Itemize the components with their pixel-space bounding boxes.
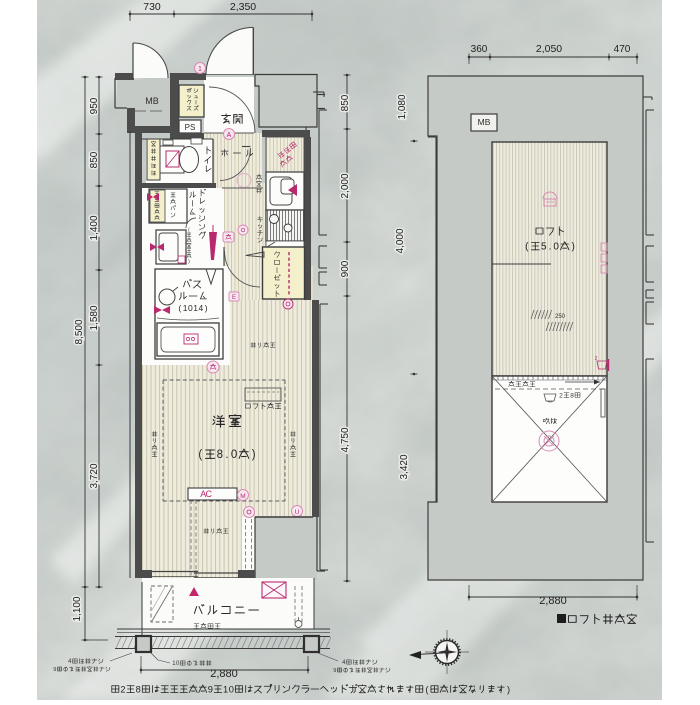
svg-text:PS: PS [185,123,196,132]
svg-text:2: 2 [595,356,598,362]
svg-text:470: 470 [614,44,631,55]
svg-text:8: 8 [570,392,574,399]
svg-text:0: 0 [229,684,234,694]
svg-text:1,100: 1,100 [72,596,83,621]
svg-text:730: 730 [143,1,161,13]
svg-text:): ) [205,303,208,313]
svg-text:8: 8 [217,449,223,461]
svg-text:4,000: 4,000 [395,228,406,253]
svg-text:8,500: 8,500 [74,319,85,344]
svg-text:.: . [549,242,552,253]
svg-text:1,580: 1,580 [89,305,100,330]
svg-text:2: 2 [559,392,563,399]
svg-text:C: C [206,489,213,499]
svg-text:8: 8 [136,684,141,694]
svg-text:2,880: 2,880 [210,668,238,680]
svg-text:(: ( [198,449,202,461]
svg-text:9: 9 [53,667,56,673]
svg-text:3,420: 3,420 [399,454,410,479]
svg-text:1: 1 [183,303,188,313]
svg-text:1,080: 1,080 [397,94,408,119]
svg-text:900: 900 [340,260,351,277]
svg-text:9: 9 [208,684,213,694]
svg-text:1,400: 1,400 [89,215,100,240]
svg-text:1: 1 [223,684,228,694]
svg-text:2,000: 2,000 [340,173,351,198]
svg-text:E: E [232,295,236,301]
svg-text:2,350: 2,350 [230,1,256,13]
svg-text:3,720: 3,720 [89,463,100,488]
svg-text:950: 950 [89,97,100,114]
svg-text:2,050: 2,050 [536,43,562,55]
svg-text:A: A [227,132,232,139]
svg-text:): ) [507,684,510,694]
svg-text:): ) [572,242,575,253]
svg-text:U: U [295,509,300,516]
svg-text:850: 850 [89,151,100,168]
svg-text:(: ( [178,303,181,313]
svg-text:0: 0 [188,303,193,313]
svg-text:0: 0 [553,242,559,253]
svg-text:MB: MB [478,117,491,127]
svg-text:M: M [240,493,245,500]
svg-text:360: 360 [471,44,488,55]
svg-text:4: 4 [199,303,204,313]
svg-text:2,880: 2,880 [539,595,567,607]
svg-text:): ) [252,449,256,461]
svg-text:5: 5 [541,242,547,253]
svg-text:0: 0 [231,449,237,461]
svg-text:4,750: 4,750 [340,427,351,452]
svg-text:1: 1 [198,66,202,73]
svg-text:1: 1 [193,303,198,313]
svg-text:MB: MB [145,96,159,106]
svg-text:2: 2 [120,684,125,694]
svg-text:850: 850 [340,94,351,111]
svg-text:250: 250 [555,314,566,320]
svg-text:9: 9 [333,668,336,674]
svg-text:.: . [225,449,228,461]
